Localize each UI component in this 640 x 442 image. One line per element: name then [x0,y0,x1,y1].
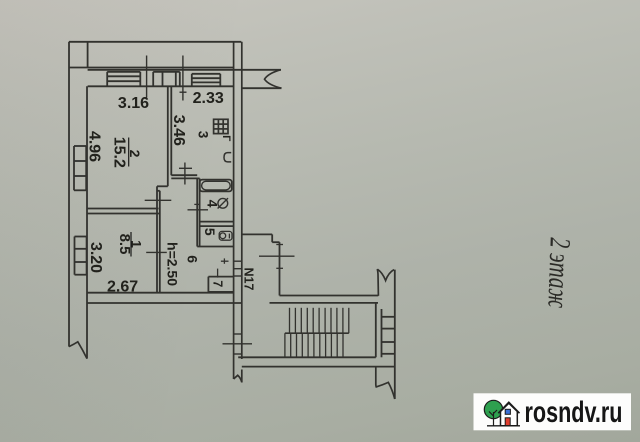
svg-text:3.20: 3.20 [87,242,104,273]
svg-text:6: 6 [185,255,201,263]
svg-text:7: 7 [211,280,225,287]
svg-text:4.96: 4.96 [86,131,103,162]
svg-text:3.46: 3.46 [170,115,187,146]
svg-text:4: 4 [205,200,221,208]
svg-text:3: 3 [196,131,211,139]
svg-text:2.33: 2.33 [193,90,224,107]
svg-text:15.2: 15.2 [111,137,128,168]
svg-text:Г: Г [220,135,232,142]
svg-text:N17: N17 [242,268,256,291]
svg-text:2: 2 [127,150,143,158]
svg-text:2 этаж: 2 этаж [541,237,577,309]
svg-text:h=2.50: h=2.50 [165,242,181,286]
svg-text:5: 5 [202,228,218,236]
svg-text:3.16: 3.16 [118,95,149,112]
svg-text:rosndv.ru: rosndv.ru [525,396,623,429]
